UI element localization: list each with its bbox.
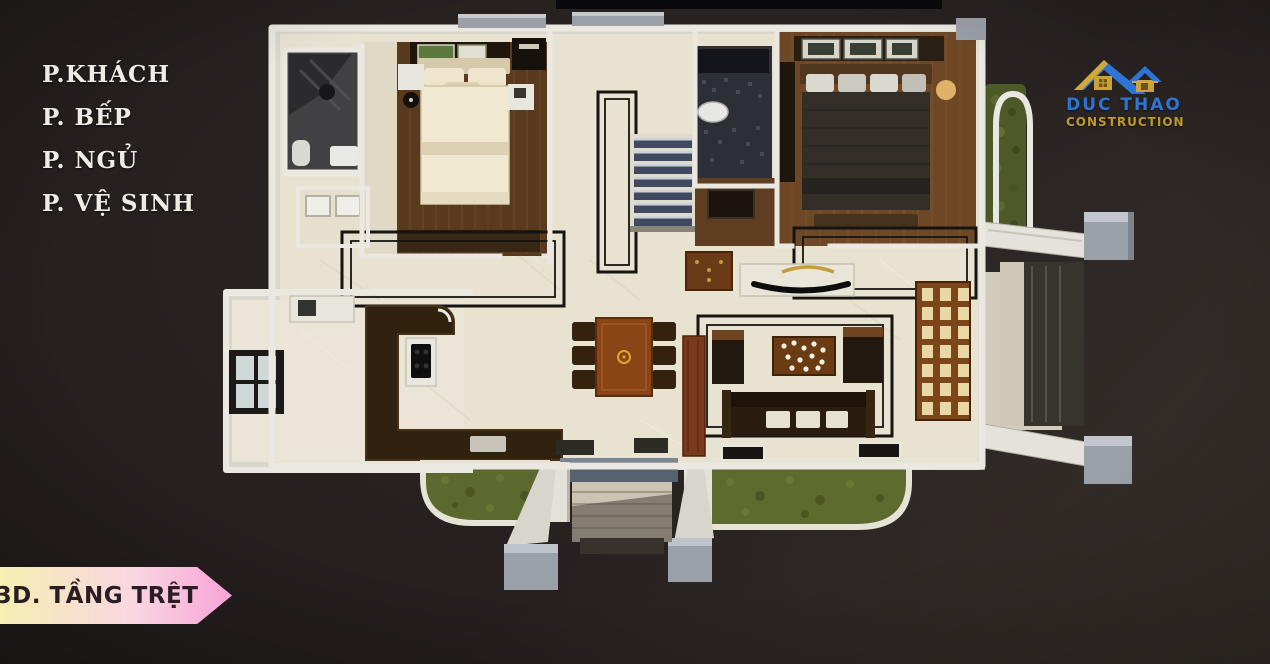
company-logo: DUC THAO CONSTRUCTION [1066, 54, 1182, 130]
legend-item-living: P.KHÁCH [42, 60, 195, 90]
floor-label-ribbon: 3D. TẦNG TRỆT [0, 567, 232, 624]
legend-item-bedroom: P. NGỦ [42, 146, 195, 176]
logo-subtitle: CONSTRUCTION [1066, 115, 1182, 130]
legend-item-kitchen: P. BẾP [42, 103, 195, 133]
logo-company-name: DUC THAO [1066, 96, 1182, 115]
ribbon-label: 3D. TẦNG TRỆT [0, 583, 198, 609]
legend-item-bathroom: P. VỆ SINH [42, 189, 195, 219]
room-legend: P.KHÁCH P. BẾP P. NGỦ P. VỆ SINH [42, 60, 195, 232]
promo-image: P.KHÁCH P. BẾP P. NGỦ P. VỆ SINH DUC THA… [0, 0, 1270, 664]
twin-house-roofs-icon [1072, 54, 1176, 94]
